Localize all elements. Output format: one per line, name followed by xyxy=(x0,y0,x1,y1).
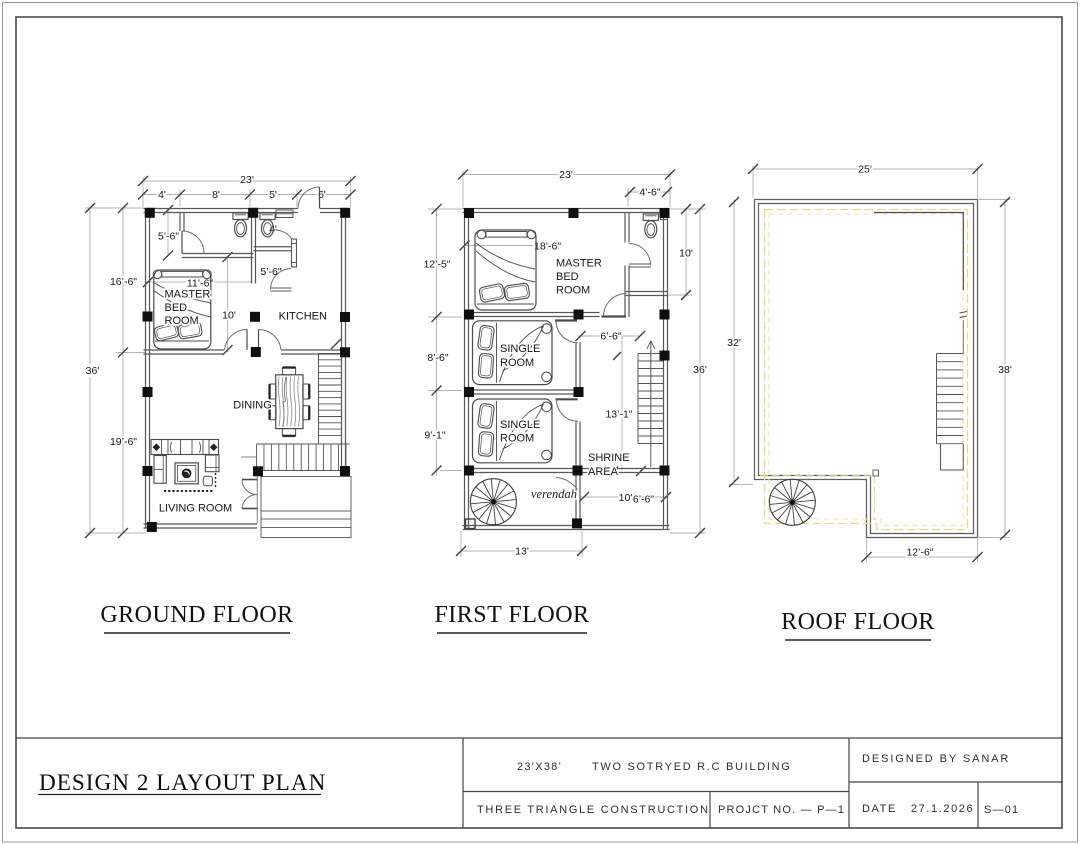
svg-text:23': 23' xyxy=(559,169,573,181)
svg-text:25': 25' xyxy=(858,164,872,176)
svg-text:8': 8' xyxy=(212,189,220,201)
svg-text:KITCHEN: KITCHEN xyxy=(279,311,327,323)
svg-text:12’-6": 12’-6" xyxy=(906,547,933,559)
svg-text:PROJCT NO. — P—1: PROJCT NO. — P—1 xyxy=(718,804,845,816)
svg-text:5’-6": 5’-6" xyxy=(260,266,282,278)
svg-text:6’-6": 6’-6" xyxy=(600,331,622,343)
svg-text:36': 36' xyxy=(693,364,707,376)
svg-text:TWO SOTRYED R.C BUILDING: TWO SOTRYED R.C BUILDING xyxy=(592,761,792,773)
svg-text:10': 10' xyxy=(679,248,693,260)
svg-text:DESIGNED BY SANAR: DESIGNED BY SANAR xyxy=(862,753,1010,765)
svg-text:12’-5": 12’-5" xyxy=(423,259,450,271)
svg-text:AREA: AREA xyxy=(588,466,619,478)
svg-text:THREE TRIANGLE CONSTRUCTION: THREE TRIANGLE CONSTRUCTION xyxy=(477,804,710,816)
svg-text:ROOM: ROOM xyxy=(165,315,199,327)
svg-text:DINING: DINING xyxy=(233,400,272,412)
svg-text:9’-1": 9’-1" xyxy=(424,430,446,442)
svg-text:32': 32' xyxy=(727,337,741,349)
svg-text:36': 36' xyxy=(86,365,100,377)
svg-text:SHRINE: SHRINE xyxy=(588,452,630,464)
svg-text:5’-6": 5’-6" xyxy=(158,231,180,243)
svg-text:FIRST FLOOR: FIRST FLOOR xyxy=(434,602,589,628)
svg-text:23': 23' xyxy=(240,174,254,186)
svg-text:LIVING ROOM: LIVING ROOM xyxy=(159,503,232,515)
svg-text:SINGLE: SINGLE xyxy=(500,343,540,355)
svg-text:ROOM: ROOM xyxy=(556,285,590,297)
svg-text:23’X38’: 23’X38’ xyxy=(517,761,562,773)
svg-text:19’-6": 19’-6" xyxy=(110,436,137,448)
svg-text:13': 13' xyxy=(515,546,529,558)
svg-text:18’-6": 18’-6" xyxy=(534,241,561,253)
svg-text:10': 10' xyxy=(619,492,633,504)
svg-text:DATE 27.1.2026: DATE 27.1.2026 xyxy=(862,803,974,815)
svg-text:ROOM: ROOM xyxy=(500,357,534,369)
svg-text:BED: BED xyxy=(165,302,188,314)
svg-text:GROUND FLOOR: GROUND FLOOR xyxy=(100,602,293,628)
svg-text:5': 5' xyxy=(269,189,277,201)
svg-text:13’-1": 13’-1" xyxy=(605,409,632,421)
svg-text:S—01: S—01 xyxy=(984,804,1019,816)
svg-text:10': 10' xyxy=(222,310,236,322)
svg-text:ROOM: ROOM xyxy=(500,433,534,445)
svg-text:4’-6": 4’-6" xyxy=(639,187,661,199)
svg-text:MASTER: MASTER xyxy=(556,258,602,270)
svg-text:SINGLE: SINGLE xyxy=(500,419,540,431)
svg-text:BED: BED xyxy=(556,271,579,283)
svg-text:16’-6": 16’-6" xyxy=(110,276,137,288)
svg-text:6’-6": 6’-6" xyxy=(633,494,655,506)
svg-text:MASTER: MASTER xyxy=(165,289,211,301)
svg-text:verendah: verendah xyxy=(531,487,577,501)
svg-text:DESIGN 2 LAYOUT PLAN: DESIGN 2 LAYOUT PLAN xyxy=(39,770,326,796)
svg-text:ROOF FLOOR: ROOF FLOOR xyxy=(781,609,935,635)
svg-text:8’-6": 8’-6" xyxy=(427,352,449,364)
svg-text:4': 4' xyxy=(158,189,166,201)
svg-text:38': 38' xyxy=(998,364,1012,376)
